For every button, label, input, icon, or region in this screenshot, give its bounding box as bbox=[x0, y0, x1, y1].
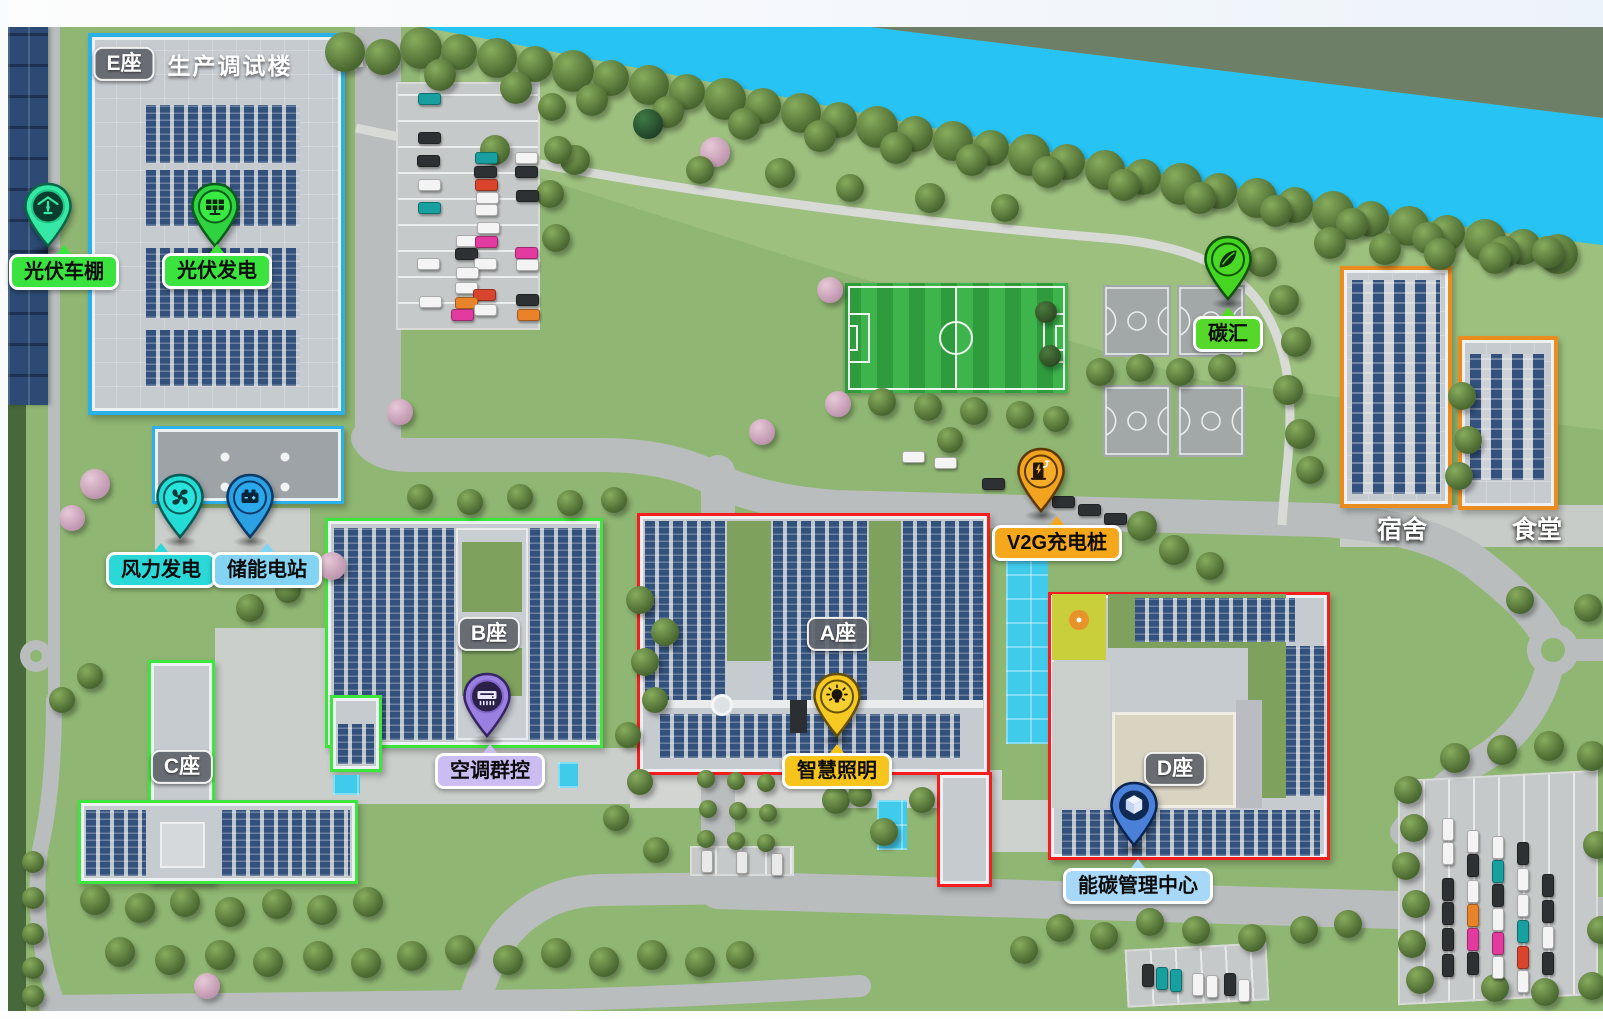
tree bbox=[262, 889, 292, 919]
tree bbox=[351, 948, 381, 978]
tree bbox=[697, 770, 715, 788]
parked-car bbox=[1542, 952, 1554, 975]
parked-car bbox=[1442, 878, 1454, 901]
tree bbox=[1534, 731, 1564, 761]
ev-charger-icon bbox=[1028, 458, 1054, 484]
tree bbox=[697, 830, 715, 848]
tree bbox=[445, 935, 475, 965]
tree bbox=[22, 851, 44, 873]
tree bbox=[1445, 462, 1473, 490]
cherry-tree bbox=[817, 277, 843, 303]
page-margin-bottom bbox=[0, 1011, 1603, 1019]
parked-car bbox=[475, 152, 498, 164]
parked-car bbox=[1517, 842, 1529, 865]
tree bbox=[353, 887, 383, 917]
parked-car bbox=[516, 294, 539, 306]
tree bbox=[1394, 776, 1422, 804]
tree bbox=[727, 832, 745, 850]
v2g-charging-marker[interactable] bbox=[1015, 447, 1067, 515]
tree bbox=[541, 938, 571, 968]
parked-car bbox=[1467, 880, 1479, 903]
wind-power-label[interactable]: 风力发电 bbox=[106, 552, 216, 588]
pv-carport-marker[interactable] bbox=[22, 182, 74, 250]
tree bbox=[914, 393, 942, 421]
parked-car bbox=[1104, 513, 1127, 525]
parked-car bbox=[1170, 969, 1182, 992]
tree bbox=[49, 687, 75, 713]
tree bbox=[1369, 233, 1401, 265]
cherry-tree bbox=[59, 505, 85, 531]
tree bbox=[686, 156, 714, 184]
parked-car bbox=[1078, 504, 1101, 516]
parked-car bbox=[1442, 954, 1454, 977]
building-e-badge: E座 bbox=[93, 47, 154, 81]
building-a-roof-dome bbox=[711, 694, 733, 716]
bush bbox=[1035, 301, 1057, 323]
tree bbox=[870, 818, 898, 846]
tree bbox=[507, 484, 533, 510]
parked-car bbox=[1192, 973, 1204, 996]
tree bbox=[22, 887, 44, 909]
tree bbox=[1532, 236, 1564, 268]
tree bbox=[804, 120, 836, 152]
tree bbox=[633, 109, 663, 139]
energy-carbon-center-marker[interactable] bbox=[1108, 781, 1160, 849]
tree bbox=[1127, 511, 1157, 541]
campus-map: E座 生产调试楼 B座 A座 C座 D座 宿舍 食堂 光伏车棚 光伏发电 bbox=[0, 0, 1603, 1019]
parked-car bbox=[1442, 902, 1454, 925]
pv-carport-label[interactable]: 光伏车棚 bbox=[9, 254, 119, 290]
parked-car bbox=[1467, 830, 1479, 853]
page-margin-left bbox=[0, 0, 8, 1019]
tree bbox=[1440, 743, 1470, 773]
building-a-badge: A座 bbox=[807, 617, 869, 651]
building-b-badge: B座 bbox=[458, 617, 520, 651]
parked-car bbox=[1542, 926, 1554, 949]
tree bbox=[1159, 535, 1189, 565]
tree bbox=[236, 594, 264, 622]
tree bbox=[493, 945, 523, 975]
tree bbox=[1126, 354, 1154, 382]
pv-generation-marker[interactable] bbox=[189, 182, 241, 250]
tree bbox=[253, 947, 283, 977]
tree bbox=[991, 194, 1019, 222]
pv-generation-label[interactable]: 光伏发电 bbox=[162, 253, 272, 289]
parked-car bbox=[418, 179, 441, 191]
parked-car bbox=[418, 202, 441, 214]
tree bbox=[365, 39, 401, 75]
building-e-solar-array bbox=[146, 330, 300, 386]
tree bbox=[1574, 594, 1602, 622]
building-d-plaza bbox=[1052, 662, 1110, 808]
tree bbox=[759, 804, 777, 822]
energy-storage-label[interactable]: 储能电站 bbox=[212, 552, 322, 588]
parked-car bbox=[1517, 920, 1529, 943]
tree bbox=[765, 158, 795, 188]
canteen-solar-array bbox=[1470, 354, 1544, 480]
tree bbox=[1285, 419, 1315, 449]
tree bbox=[836, 174, 864, 202]
parked-car bbox=[771, 853, 783, 876]
carport-icon bbox=[35, 193, 61, 219]
parked-car bbox=[1492, 884, 1504, 907]
tree bbox=[1010, 936, 1038, 964]
parked-car bbox=[1442, 928, 1454, 951]
parked-car bbox=[474, 304, 497, 316]
parked-car bbox=[1442, 842, 1454, 865]
pool bbox=[1006, 556, 1048, 744]
canteen-label: 食堂 bbox=[1512, 510, 1562, 546]
smart-lighting-label[interactable]: 智慧照明 bbox=[782, 753, 892, 789]
tree bbox=[500, 72, 532, 104]
parked-car bbox=[1467, 952, 1479, 975]
bush bbox=[1039, 345, 1061, 367]
tree bbox=[915, 183, 945, 213]
parked-car bbox=[418, 132, 441, 144]
building-b-south-wing-solar bbox=[338, 724, 374, 764]
tree bbox=[1479, 242, 1511, 274]
parked-car bbox=[1442, 818, 1454, 841]
cherry-tree bbox=[387, 399, 413, 425]
tree bbox=[880, 132, 912, 164]
tree bbox=[1398, 930, 1426, 958]
fan-icon bbox=[167, 484, 193, 510]
tree bbox=[1578, 972, 1603, 1000]
parked-car bbox=[418, 93, 441, 105]
tree bbox=[868, 388, 896, 416]
tree bbox=[1448, 382, 1476, 410]
tree bbox=[1090, 922, 1118, 950]
parked-car bbox=[1467, 928, 1479, 951]
tree bbox=[1208, 354, 1236, 382]
carbon-sink-label[interactable]: 碳汇 bbox=[1193, 316, 1263, 352]
parked-car bbox=[1492, 956, 1504, 979]
parked-car bbox=[1517, 946, 1529, 969]
building-a-solar-array bbox=[645, 521, 725, 703]
parked-car bbox=[474, 166, 497, 178]
tree bbox=[397, 941, 427, 971]
tree bbox=[325, 32, 365, 72]
tree bbox=[407, 484, 433, 510]
battery-icon bbox=[237, 484, 263, 510]
tree bbox=[589, 947, 619, 977]
tree bbox=[22, 985, 44, 1007]
building-e-title: 生产调试楼 bbox=[168, 47, 293, 81]
tree bbox=[80, 885, 110, 915]
tree bbox=[601, 487, 627, 513]
tree bbox=[1260, 195, 1292, 227]
tree bbox=[544, 136, 572, 164]
cherry-tree bbox=[825, 391, 851, 417]
tree bbox=[105, 937, 135, 967]
building-d-solar-array bbox=[1135, 598, 1295, 642]
pond bbox=[558, 762, 578, 788]
parked-car bbox=[515, 166, 538, 178]
smart-lighting-marker[interactable] bbox=[811, 672, 863, 740]
parked-car bbox=[417, 258, 440, 270]
cherry-tree bbox=[194, 973, 220, 999]
parked-car bbox=[701, 850, 713, 873]
light-bulb-icon bbox=[824, 683, 850, 709]
parked-car bbox=[1238, 979, 1250, 1002]
tree bbox=[576, 84, 608, 116]
tree bbox=[1032, 156, 1064, 188]
tree bbox=[631, 648, 659, 676]
wind-power-marker[interactable] bbox=[154, 473, 206, 541]
parked-car bbox=[1467, 854, 1479, 877]
tree bbox=[424, 59, 456, 91]
tree bbox=[626, 586, 654, 614]
parked-car bbox=[516, 190, 539, 202]
parked-car bbox=[1517, 868, 1529, 891]
parked-car bbox=[477, 222, 500, 234]
tree bbox=[1392, 852, 1420, 880]
tree bbox=[1506, 586, 1534, 614]
tree bbox=[699, 800, 717, 818]
tree bbox=[728, 108, 760, 140]
parked-car bbox=[736, 851, 748, 874]
cherry-tree bbox=[318, 552, 346, 580]
energy-storage-marker[interactable] bbox=[224, 473, 276, 541]
tree bbox=[729, 802, 747, 820]
tree bbox=[536, 180, 564, 208]
tree bbox=[1269, 285, 1299, 315]
tree bbox=[726, 941, 754, 969]
tree bbox=[960, 397, 988, 425]
building-d-corridor bbox=[1236, 700, 1262, 808]
tree bbox=[1182, 916, 1210, 944]
tree bbox=[637, 940, 667, 970]
parked-car bbox=[1517, 970, 1529, 993]
building-e-solar-array bbox=[146, 105, 300, 163]
hvac-group-control-marker[interactable] bbox=[461, 672, 513, 740]
tree bbox=[627, 769, 653, 795]
parked-car bbox=[1156, 967, 1168, 990]
parked-car bbox=[1206, 975, 1218, 998]
tree bbox=[1296, 456, 1324, 484]
tree bbox=[1334, 910, 1362, 938]
parked-car bbox=[1542, 900, 1554, 923]
tree bbox=[557, 490, 583, 516]
tree bbox=[1273, 375, 1303, 405]
parked-car bbox=[1492, 932, 1504, 955]
tree bbox=[757, 774, 775, 792]
tree bbox=[542, 224, 570, 252]
building-c-roof-core bbox=[160, 822, 205, 868]
tree bbox=[22, 923, 44, 945]
tree bbox=[205, 940, 235, 970]
parked-car bbox=[419, 296, 442, 308]
pond bbox=[333, 775, 360, 795]
tree bbox=[1238, 924, 1266, 952]
tree bbox=[1184, 182, 1216, 214]
parked-car bbox=[451, 309, 474, 321]
tree bbox=[303, 941, 333, 971]
cube-icon bbox=[1121, 792, 1147, 818]
building-a-kiosk bbox=[790, 700, 807, 733]
building-d-solar-array bbox=[1062, 810, 1320, 856]
tree bbox=[1402, 890, 1430, 918]
building-a-courtyard bbox=[727, 521, 771, 661]
tree bbox=[956, 144, 988, 176]
building-a-solar-array bbox=[660, 714, 960, 758]
tree bbox=[1086, 358, 1114, 386]
cherry-tree bbox=[749, 419, 775, 445]
parked-car bbox=[516, 259, 539, 271]
tree bbox=[1196, 552, 1224, 580]
tree bbox=[22, 957, 44, 979]
building-b-courtyard bbox=[462, 542, 522, 612]
tree bbox=[1424, 238, 1456, 270]
tree bbox=[1314, 227, 1346, 259]
parked-car bbox=[475, 179, 498, 191]
tree bbox=[1166, 358, 1194, 386]
tree bbox=[651, 618, 679, 646]
building-d-solar-array bbox=[1286, 646, 1326, 796]
tree bbox=[1046, 914, 1074, 942]
parked-car bbox=[475, 236, 498, 248]
solar-panel-icon bbox=[202, 193, 228, 219]
tree bbox=[77, 663, 103, 689]
leaf-icon bbox=[1215, 246, 1241, 272]
tree bbox=[1583, 831, 1603, 859]
parked-car bbox=[1467, 904, 1479, 927]
parked-car bbox=[1542, 874, 1554, 897]
tree bbox=[937, 427, 963, 453]
tree bbox=[1400, 814, 1428, 842]
building-c-solar-array bbox=[222, 810, 350, 876]
parked-car bbox=[1492, 860, 1504, 883]
air-conditioner-icon bbox=[474, 683, 500, 709]
football-field bbox=[845, 283, 1068, 393]
tree bbox=[603, 805, 629, 831]
parked-car bbox=[1224, 973, 1236, 996]
tree bbox=[615, 722, 641, 748]
building-d-deck bbox=[1052, 594, 1106, 660]
tree bbox=[1108, 169, 1140, 201]
tree bbox=[1454, 426, 1482, 454]
tree bbox=[1290, 916, 1318, 944]
building-a-solar-array bbox=[903, 521, 983, 703]
tree bbox=[1577, 741, 1603, 771]
tree bbox=[909, 787, 935, 813]
tree bbox=[727, 772, 745, 790]
parked-car bbox=[515, 152, 538, 164]
parked-car bbox=[934, 457, 957, 469]
tree bbox=[1043, 406, 1069, 432]
building-a-extension bbox=[937, 772, 992, 887]
parked-car bbox=[1492, 836, 1504, 859]
dormitory-label: 宿舍 bbox=[1377, 510, 1427, 546]
tree bbox=[1487, 735, 1517, 765]
tree bbox=[215, 897, 245, 927]
parked-car bbox=[475, 204, 498, 216]
tree bbox=[1006, 401, 1034, 429]
tree bbox=[457, 489, 483, 515]
page-margin-top bbox=[0, 0, 1603, 27]
tree bbox=[822, 786, 850, 814]
parked-car bbox=[517, 309, 540, 321]
tree bbox=[155, 945, 185, 975]
tree bbox=[125, 893, 155, 923]
parked-car bbox=[1492, 908, 1504, 931]
parked-car bbox=[456, 267, 479, 279]
tree bbox=[538, 93, 566, 121]
energy-carbon-center-label[interactable]: 能碳管理中心 bbox=[1063, 868, 1213, 904]
tree bbox=[1531, 978, 1559, 1006]
parked-car bbox=[476, 192, 499, 204]
tree bbox=[643, 837, 669, 863]
parked-car bbox=[902, 451, 925, 463]
carbon-sink-marker[interactable] bbox=[1202, 235, 1254, 303]
tree bbox=[1406, 966, 1434, 994]
parked-car bbox=[515, 247, 538, 259]
parked-car bbox=[1142, 964, 1154, 987]
building-c-badge: C座 bbox=[151, 750, 213, 784]
hvac-group-control-label[interactable]: 空调群控 bbox=[435, 753, 545, 789]
tree bbox=[1136, 908, 1164, 936]
tree bbox=[1281, 327, 1311, 357]
tree bbox=[685, 947, 715, 977]
parked-car bbox=[1517, 894, 1529, 917]
tree bbox=[757, 834, 775, 852]
dormitory-solar-array bbox=[1352, 280, 1440, 494]
building-c-solar-array bbox=[86, 810, 146, 876]
tree bbox=[642, 687, 668, 713]
parked-car bbox=[982, 478, 1005, 490]
v2g-charging-label[interactable]: V2G充电桩 bbox=[992, 525, 1122, 561]
building-a-courtyard bbox=[869, 521, 901, 661]
tree bbox=[170, 887, 200, 917]
tree bbox=[307, 895, 337, 925]
cherry-tree bbox=[80, 469, 110, 499]
building-b-solar-array bbox=[530, 528, 600, 740]
parked-car bbox=[417, 155, 440, 167]
